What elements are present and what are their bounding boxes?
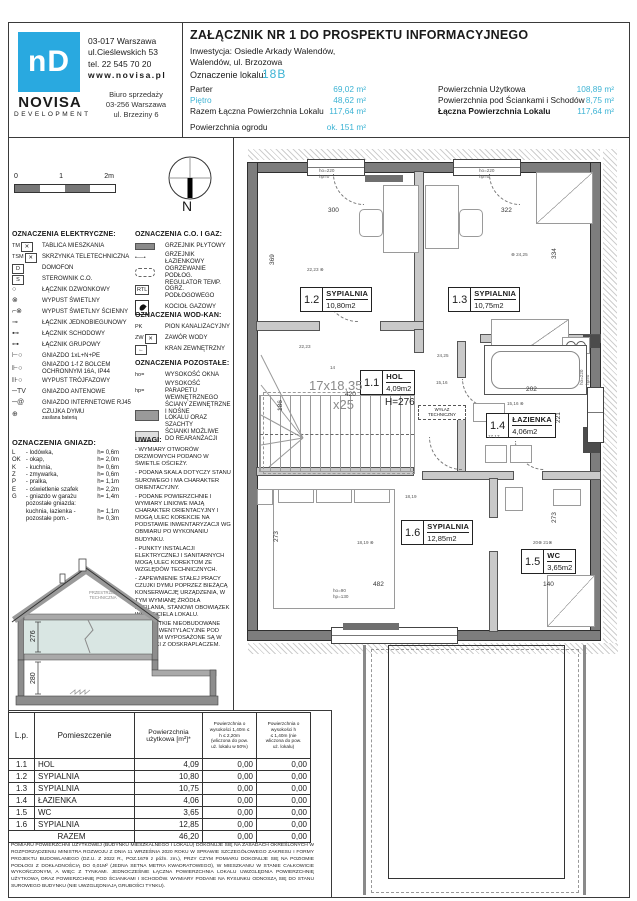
symbol-glyph-icon: ─@ [12, 399, 24, 407]
section-dim-lower: 280 [30, 672, 37, 684]
scale-bar [14, 184, 116, 193]
table-cell: 10,75 [135, 783, 203, 795]
plan-annotation: ho=220 hp=0 [479, 168, 494, 179]
col-header-area-under-140: Powierzchnia o wysokości h ≤ 1,40m (nie … [257, 713, 311, 759]
table-row: 1.1HOL4,090,000,00 [9, 759, 311, 771]
header-divider [182, 22, 183, 137]
legend-item-label: ŁĄCZNIK GRUPOWY [42, 342, 101, 349]
room-area: 4,06m2 [512, 426, 552, 436]
room-text: SYPIALNIA10,80m2 [323, 288, 371, 311]
socket-height-row: G- gniazdo w garażuh= 1,4m [12, 494, 132, 501]
table-row: 1.6SYPIALNIA12,850,000,00 [9, 819, 311, 831]
exterior-wall-top [248, 163, 600, 172]
legend-item: ⊷ŁĄCZNIK SCHODOWY [12, 329, 132, 340]
room-text: WC3,65m2 [544, 550, 575, 573]
room-label: 1.5WC3,65m2 [521, 549, 576, 574]
socket-key: P [12, 479, 26, 486]
table-cell: 0,00 [257, 819, 311, 831]
legend-item-label: DOMOFON [42, 265, 73, 272]
novisa-logo-icon: nD [18, 32, 80, 92]
legend-item: ⊶ŁĄCZNIK GRUPOWY [12, 340, 132, 351]
brand-subname: DEVELOPMENT [14, 111, 86, 118]
legend-item-label: ŁĄCZNIK JEDNOBIEGUNOWY [42, 320, 127, 327]
socket-desc: - kuchnia, [26, 465, 97, 472]
address-line: 03-017 Warszawa [88, 36, 180, 47]
symbol-box-icon: ← [135, 345, 147, 355]
stair-winder-lines [259, 345, 319, 470]
legend-symbol: ⊶ [12, 341, 42, 349]
symbol-prefix: ho= [135, 372, 144, 378]
table-cell: WC [35, 807, 135, 819]
legend-item-label: ŁĄCZNIK SCHODOWY [42, 331, 105, 338]
legend-item: OGRZEWANIE PODŁOG. [135, 266, 233, 280]
dimension-label: 221 [555, 412, 562, 423]
legend-symbol: ⌐⊗ [12, 308, 42, 316]
address-line: tel. 22 545 70 20 [88, 59, 180, 70]
symbol-glyph-icon: ─TV [12, 388, 26, 396]
note-item: - PODANA SKALA DOTYCZY STANU SUROWEGO I … [135, 470, 232, 491]
legend-symbol: hp= [135, 388, 165, 394]
legend-symbol [135, 410, 165, 421]
col-header-room: Pomieszczenie [35, 713, 135, 759]
dimension-label: 186 [277, 400, 284, 411]
legend-gniazda-rows: L- lodówka,h= 0,6mOK- okap,h= 2,0mK- kuc… [12, 450, 132, 523]
room-label: 1.3SYPIALNIA10,75m2 [448, 287, 520, 312]
legend-item: ⊗WYPUST ŚWIETLNY [12, 296, 132, 307]
stat-label: Powierzchnia Użytkowa [438, 84, 526, 95]
table-cell: 1.2 [9, 771, 35, 783]
socket-height: h= 1,1m [97, 509, 132, 516]
legend-co-gaz-title: OZNACZENIA C.O. I GAZ: [135, 231, 233, 238]
plan-annotation: 22,23 ⊗ [307, 267, 324, 273]
socket-key: E [12, 487, 26, 494]
col-header-lp: L.p. [9, 713, 35, 759]
document-title: ZAŁĄCZNIK NR 1 DO PROSPEKTU INFORMACYJNE… [190, 28, 528, 42]
legend-symbol: ⊷ [12, 330, 42, 338]
legend-item: hp=WYSOKOŚĆ PARAPETU WEWNĘTRZNEGO [135, 381, 233, 402]
scale-1: 1 [59, 173, 63, 180]
legend-item: TSM✕SKRZYNKA TELETECHNICZNA [12, 252, 132, 263]
table-total-value: 46,20 [135, 831, 203, 843]
legend-item-label: WYSOKOŚĆ PARAPETU WEWNĘTRZNEGO [165, 381, 233, 402]
dimension-label: 273 [273, 531, 280, 542]
plan-annotation: ho=220 hp=0 [319, 168, 334, 179]
company-address: 03-017 Warszawa ul.Cieślewskich 53 tel. … [88, 36, 180, 82]
stat-label: Powierzchnia ogrodu [190, 122, 267, 133]
legend-item-label: ŚCIANY ZEWNĘTRZNE I NOŚNE LOKALU ORAZ SZ… [165, 402, 233, 430]
legend-item-label: STEROWNIK C.O. [42, 276, 92, 283]
legend-symbol: ⊪○ [12, 377, 42, 385]
symbol-glyph-icon: ⊸ [12, 319, 18, 327]
stat-label: Parter [190, 84, 213, 95]
room-text: ŁAZIENKA4,06m2 [509, 414, 555, 437]
legend-symbol: RTL [135, 285, 165, 295]
socket-height: h= 0,3m [97, 516, 132, 523]
area-stat-row: Parter69,02 m² [190, 84, 366, 95]
desk [383, 185, 419, 253]
room-area: 12,85m2 [427, 533, 469, 543]
plan-annotation: ho=90 hp=130 [333, 588, 348, 599]
area-stats-right: Powierzchnia Użytkowa108,89 m²Powierzchn… [438, 84, 614, 117]
legend-wod-kan-title: OZNACZENIA WOD-KAN: [135, 312, 233, 319]
bidet [510, 445, 532, 463]
legend-item: ⊩○GNIAZDO 1-f Z BOLCEM OCHRONNYM 16A, IP… [12, 362, 132, 376]
plan-annotation: 17 17 [488, 434, 500, 440]
table-cell: 0,00 [257, 807, 311, 819]
plan-annotation: 14 [330, 365, 335, 371]
legend-symbol [135, 243, 165, 250]
section-dim-upper: 276 [30, 630, 37, 642]
dimension-label: 273 [551, 512, 558, 523]
nightstand [257, 489, 273, 505]
plan-annotation: 18,19 ⊗ [357, 540, 374, 546]
symbol-glyph-icon: ⊩○ [12, 365, 22, 373]
table-row: 1.3SYPIALNIA10,750,000,00 [9, 783, 311, 795]
toilet [485, 445, 507, 463]
sales-office-address: Biuro sprzedaży 03-256 Warszawa ul. Brze… [92, 90, 180, 120]
legend-item: DDOMOFON [12, 263, 132, 274]
symbol-prefix: PK [135, 324, 142, 330]
symbol-prefix: hp= [135, 388, 144, 394]
roof-hatch-right [603, 149, 617, 649]
legend-item: PKPION KANALIZACYJNY [135, 322, 233, 333]
plan-annotation: 20⊗ 21⊗ [533, 540, 552, 546]
table-cell: SYPIALNIA [35, 783, 135, 795]
stat-value: 8,75 m² [586, 95, 614, 106]
socket-desc: - pralka, [26, 479, 97, 486]
plan-annotation: 18,19 [405, 494, 417, 500]
legend-item-label: WYPUST ŚWIETLNY ŚCIENNY [42, 309, 128, 316]
table-total-label: RAZEM [9, 831, 135, 843]
legend-item: ⊸ŁĄCZNIK JEDNOBIEGUNOWY [12, 318, 132, 329]
garden-boundary-right [583, 645, 586, 895]
legend-wod-kan: OZNACZENIA WOD-KAN: PKPION KANALIZACYJNY… [135, 312, 233, 355]
socket-height: h= 1,4m [97, 494, 132, 501]
socket-height-row: E- oświetlenie szafekh= 2,2m [12, 487, 132, 494]
legend-item: ŚCIANY ZEWNĘTRZNE I NOŚNE LOKALU ORAZ SZ… [135, 402, 233, 430]
plan-note: H=276 [385, 397, 415, 408]
table-cell: 3,65 [135, 807, 203, 819]
room-number: 1.6 [402, 521, 424, 544]
table-total-value: 0,00 [257, 831, 311, 843]
socket-key: L [12, 450, 26, 457]
legend-symbol: ← [135, 345, 165, 355]
legend-symbol: ho= [135, 372, 165, 378]
exterior-wall-left [248, 163, 257, 640]
legend-item-label: GNIAZDO 1-f Z BOLCEM OCHRONNYM 16A, IP44 [42, 362, 110, 376]
legend-symbol: ○ [12, 286, 42, 294]
symbol-glyph-icon: ⌐⊗ [12, 308, 22, 316]
socket-desc: kuchnia, łazienka - [26, 509, 97, 516]
legend-item: ─@GNIAZDO INTERNETOWE RJ45 [12, 398, 132, 409]
col-header-area: Powierzchnia użytkowa [m²]* [135, 713, 203, 759]
shower [547, 575, 595, 627]
symbol-glyph-icon: ⊷ [12, 330, 19, 338]
room-number: 1.5 [522, 550, 544, 573]
legend-item-label: WYSOKOŚĆ OKNA [165, 372, 219, 379]
unit-label: Oznaczenie lokalu: [190, 70, 266, 80]
chair [459, 209, 483, 237]
socket-height-row: pozostałe gniazda: [12, 501, 132, 508]
room-area: 10,75m2 [474, 300, 516, 310]
partition-r12-b [381, 322, 423, 330]
socket-desc: - lodówka, [26, 450, 97, 457]
scale-bar-labels: 0 1 2m [14, 173, 114, 180]
scale-2m: 2m [104, 173, 114, 180]
radiator-icon [135, 243, 155, 250]
table-cell: 4,09 [135, 759, 203, 771]
wc-toilet [505, 487, 523, 511]
legend-symbol: S [12, 275, 42, 285]
legend-item-label: GNIAZDO ANTENOWE [42, 389, 105, 396]
table-cell: 0,00 [257, 795, 311, 807]
legend-item-label: WYPUST ŚWIETLNY [42, 298, 100, 305]
legend-symbol: ─@ [12, 399, 42, 407]
partition-hall-top [415, 330, 423, 352]
dimension-label: 334 [551, 248, 558, 259]
socket-height-row: kuchnia, łazienka -h= 1,1m [12, 509, 132, 516]
legal-footnote: POMIARU POWIERZCHNI UŻYTKOWEJ (BUDYNKU M… [11, 843, 314, 891]
legend-item: ⌐⊗WYPUST ŚWIETLNY ŚCIENNY [12, 307, 132, 318]
garden-area [388, 645, 565, 879]
partition-wc-a [490, 479, 497, 517]
area-stat-row: Łączna Powierzchnia Lokalu117,64 m² [438, 106, 614, 117]
legend-symbol: ⊕ [12, 411, 42, 419]
legend-co-gaz-items: GRZEJNIK PŁYTOWY•──•GRZEJNIK ŁAZIENKOWYO… [135, 241, 233, 315]
room-number: 1.3 [449, 288, 471, 311]
stat-value: ok. 151 m² [327, 122, 366, 133]
stat-value: 117,64 m² [577, 106, 614, 117]
room-name: SYPIALNIA [326, 289, 368, 300]
socket-height: h= 0,6m [97, 472, 132, 479]
table-cell: HOL [35, 759, 135, 771]
table-cell: 1.5 [9, 807, 35, 819]
table-cell: 0,00 [203, 795, 257, 807]
legend-item-label: OGRZEWANIE PODŁOG. [165, 266, 233, 280]
note-item: - PODANE POWIERZCHNIE I WYMIARY LINIOWE … [135, 494, 232, 544]
legend-item: GRZEJNIK PŁYTOWY [135, 241, 233, 252]
investment-line: Inwestycja: Osiedle Arkady Walendów, [190, 46, 335, 57]
legend-item: ZW✕ZAWÓR WODY [135, 333, 233, 344]
notes-title: UWAGI: [135, 437, 232, 444]
legend-pozostale: OZNACZENIA POZOSTAŁE: ho=WYSOKOŚĆ OKNAhp… [135, 360, 233, 443]
socket-key [12, 501, 26, 508]
table-cell: 12,85 [135, 819, 203, 831]
table-total-value: 0,00 [203, 831, 257, 843]
table-cell: 0,00 [203, 759, 257, 771]
room-area-table: L.p. Pomieszczenie Powierzchnia użytkowa… [8, 712, 311, 843]
socket-desc: - gniazdo w garażu [26, 494, 97, 501]
legend-item: TM✕TABLICA MIESZKANIA [12, 241, 132, 252]
table-cell: SYPIALNIA [35, 771, 135, 783]
socket-height-row: L- lodówka,h= 0,6m [12, 450, 132, 457]
document-page: nD NOVISA DEVELOPMENT 03-017 Warszawa ul… [0, 0, 637, 901]
room-number: 1.2 [301, 288, 323, 311]
legend-item-label: SKRZYNKA TELETECHNICZNA [42, 254, 129, 261]
investment-info: Inwestycja: Osiedle Arkady Walendów, Wal… [190, 46, 335, 68]
symbol-box-icon: ✕ [21, 242, 33, 252]
socket-height-row: P- pralka,h= 1,1m [12, 479, 132, 486]
legend-wod-kan-items: PKPION KANALIZACYJNYZW✕ZAWÓR WODY←KRAN Z… [135, 322, 233, 355]
wall-swatch-dark [135, 410, 159, 421]
partition-hall-bath-a [458, 342, 465, 377]
socket-height-row: pozostałe pom.-h= 0,3m [12, 516, 132, 523]
stat-value: 48,62 m² [333, 95, 366, 106]
table-cell: 1.6 [9, 819, 35, 831]
technical-hatch-label: WYŁAZ TECHNICZNY [418, 405, 466, 420]
legend-pozostale-title: OZNACZENIA POZOSTAŁE: [135, 360, 233, 367]
legend-item-label: GRZEJNIK ŁAZIENKOWY [165, 252, 233, 266]
wc-washbasin [553, 489, 581, 506]
table-total-row: RAZEM46,200,000,00 [9, 831, 311, 843]
symbol-box-icon: ✕ [145, 334, 157, 344]
company-website-link[interactable]: www.novisa.pl [88, 70, 180, 81]
chair [359, 209, 383, 237]
partition-mid-a [423, 472, 513, 479]
legend-electrical-title: OZNACZENIA ELEKTRYCZNE: [12, 231, 132, 238]
bed-pillow [354, 489, 390, 503]
dimension-label: 482 [373, 581, 384, 588]
symbol-glyph-icon: ⊢○ [12, 352, 22, 360]
legend-gniazda-title: OZNACZENIA GNIAZD: [12, 438, 132, 447]
symbol-box-icon: ✕ [25, 253, 37, 263]
socket-height: h= 1,1m [97, 479, 132, 486]
room-area: 3,65m2 [547, 562, 572, 572]
stat-value: 117,64 m² [329, 106, 366, 117]
legend-item-label: KRAN ZEWNĘTRZNY [165, 346, 225, 353]
partition-r12-a [257, 322, 319, 330]
building-cross-section: 276 280 PRZESTRZEŃ TECHNICZNA [8, 558, 230, 706]
room-area: 10,80m2 [326, 300, 368, 310]
dimension-label: 202 [526, 386, 537, 393]
area-stats-left: Parter69,02 m²Piętro48,62 m²Razem Łączna… [190, 84, 366, 133]
room-name: ŁAZIENKA [512, 415, 552, 426]
section-attic-label2: TECHNICZNA [90, 595, 117, 600]
area-stat-row: Powierzchnia pod Ściankami i Schodów8,75… [438, 95, 614, 106]
brand-name: NOVISA [14, 94, 86, 111]
socket-desc: - okap, [26, 457, 97, 464]
plan-note: 17x18,35 [309, 378, 363, 393]
symbol-glyph-icon: ⊶ [12, 341, 19, 349]
plan-annotation: ho=220 hp=0 [579, 370, 590, 385]
office-line: 03-256 Warszawa [92, 100, 180, 110]
room-name: SYPIALNIA [427, 522, 469, 533]
wardrobe [365, 175, 403, 182]
legend-item-sublabel: zasilana baterią [42, 416, 84, 422]
garden-boundary-left [363, 645, 366, 895]
area-stat-row: Powierzchnia Użytkowa108,89 m² [438, 84, 614, 95]
symbol-box-icon: RTL [135, 285, 149, 295]
socket-height-row: K- kuchnia,h= 0,6m [12, 465, 132, 472]
legend-symbol: TSM✕ [12, 253, 42, 263]
legend-co-gaz: OZNACZENIA C.O. I GAZ: GRZEJNIK PŁYTOWY•… [135, 231, 233, 315]
desk [425, 185, 459, 249]
symbol-box-icon: D [12, 264, 24, 274]
socket-desc: - oświetlenie szafek [26, 487, 97, 494]
legend-gniazda: OZNACZENIA GNIAZD: L- lodówka,h= 0,6mOK-… [12, 438, 132, 523]
socket-key [12, 509, 26, 516]
scale-0: 0 [14, 173, 18, 180]
legend-item-label: WYPUST TRÓJFAZOWY [42, 378, 110, 385]
area-stat-row: Razem Łączna Powierzchnia Lokalu117,64 m… [190, 106, 366, 117]
plan-note: x25 [333, 397, 354, 412]
socket-height-row: Z- zmywarka,h= 0,6m [12, 472, 132, 479]
socket-height-row: OK- okap,h= 2,0m [12, 457, 132, 464]
legend-item-label: GRZEJNIK PŁYTOWY [165, 243, 226, 250]
symbol-prefix: TM [12, 243, 20, 249]
symbol-prefix: TSM [12, 254, 24, 260]
office-line: Biuro sprzedaży [92, 90, 180, 100]
symbol-glyph-icon: ○ [12, 286, 16, 294]
socket-key: Z [12, 472, 26, 479]
plan-annotation: 24,25 [437, 353, 449, 359]
socket-height: h= 0,6m [97, 465, 132, 472]
brand-block: NOVISA DEVELOPMENT [14, 94, 86, 118]
towel-radiator-icon: •──• [135, 256, 146, 262]
room-text: HOL4,09m2 [383, 371, 414, 394]
radiator [343, 623, 399, 630]
area-stat-row: Powierzchnia ogroduok. 151 m² [190, 122, 366, 133]
room-area-table-body: 1.1HOL4,090,000,001.2SYPIALNIA10,800,000… [9, 759, 311, 843]
stat-label: Łączna Powierzchnia Lokalu [438, 106, 551, 117]
table-cell: 0,00 [203, 771, 257, 783]
table-cell: ŁAZIENKA [35, 795, 135, 807]
legend-item-label: TABLICA MIESZKANIA [42, 243, 104, 250]
legend-item: ←KRAN ZEWNĘTRZNY [135, 344, 233, 355]
compass-north-label: N [182, 198, 192, 214]
room-number: 1.1 [361, 371, 383, 394]
partition-wc-b [490, 552, 497, 631]
stat-label: Powierzchnia pod Ściankami i Schodów [438, 95, 585, 106]
table-cell: 0,00 [203, 807, 257, 819]
table-cell: 0,00 [203, 783, 257, 795]
window-bathroom [587, 387, 604, 443]
socket-desc: pozostałe gniazda: [26, 501, 97, 508]
legend-item: ho=WYSOKOŚĆ OKNA [135, 370, 233, 381]
legend-symbol: ZW✕ [135, 334, 165, 344]
table-cell: SYPIALNIA [35, 819, 135, 831]
table-cell: 4,06 [135, 795, 203, 807]
legend-symbol: •──• [135, 256, 165, 262]
floor-heating-icon [135, 268, 155, 277]
door-arc [429, 437, 462, 470]
socket-desc: - zmywarka, [26, 472, 97, 479]
symbol-box-icon: S [12, 275, 24, 285]
legend-symbol: ⊩○ [12, 365, 42, 373]
table-cell: 0,00 [257, 771, 311, 783]
table-cell: 0,00 [257, 759, 311, 771]
stat-label: Piętro [190, 95, 212, 106]
table-row: 1.2SYPIALNIA10,800,000,00 [9, 771, 311, 783]
table-cell: 1.3 [9, 783, 35, 795]
room-text: SYPIALNIA10,75m2 [471, 288, 519, 311]
legend-item-label: PION KANALIZACYJNY [165, 324, 230, 331]
legend-electrical: OZNACZENIA ELEKTRYCZNE: TM✕TABLICA MIESZ… [12, 231, 132, 421]
office-line: ul. Brzeziny 6 [92, 110, 180, 120]
stat-label: Razem Łączna Powierzchnia Lokalu [190, 106, 324, 117]
room-name: SYPIALNIA [474, 289, 516, 300]
legend-item: SSTEROWNIK C.O. [12, 274, 132, 285]
room-name: HOL [386, 372, 411, 383]
dimension-label: 369 [269, 254, 276, 265]
table-cell: 0,00 [257, 783, 311, 795]
legend-symbol: PK [135, 324, 165, 330]
col-header-area-140-220: Powierzchnia o wysokości 1,40m ≤ h ≤ 2,2… [203, 713, 257, 759]
room-area: 4,09m2 [386, 383, 411, 393]
dimension-label: 322 [501, 207, 512, 214]
symbol-prefix: ZW [135, 335, 144, 341]
legend-item: ─TVGNIAZDO ANTENOWE [12, 387, 132, 398]
